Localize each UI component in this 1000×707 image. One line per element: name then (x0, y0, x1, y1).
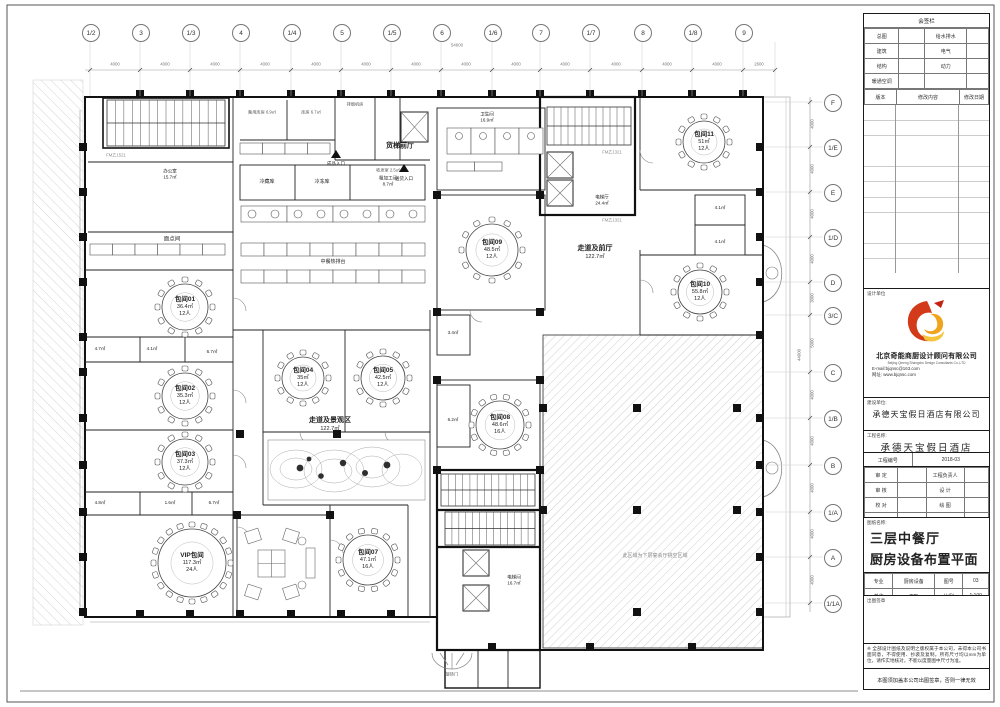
zone-cold-storage-1: 冷藏库 (259, 179, 274, 185)
area-tag: 3.4㎡ (448, 330, 459, 336)
grid-bubble: E (824, 184, 842, 202)
room-label: 包间1151㎡12人 (694, 131, 714, 153)
sheet-name-line2: 厨房设备布置平面图 (870, 549, 989, 573)
prep-bench-row-2 (241, 270, 425, 283)
zone-elevator-room: 电梯间16.7㎡ (507, 574, 521, 585)
dim-label: 4000 (311, 62, 321, 67)
grid-bubble: 1/7 (582, 24, 600, 42)
stair-top-left (107, 100, 225, 146)
validity-note: 本图须加盖本公司出图签章，否则一律无效 (864, 669, 989, 691)
prep-bench-row-1 (241, 243, 425, 256)
dim-label: 4000 (810, 483, 815, 493)
grid-bubble: 5 (333, 24, 351, 42)
dim-label: 4000 (411, 62, 421, 67)
room-label: 包间0435㎡12人 (293, 367, 313, 389)
zone-foyer-corridor: 走道及前厅122.7㎡ (578, 245, 613, 261)
zone-pastry: 面点间 (164, 237, 181, 244)
grid-bubble: 3 (132, 24, 150, 42)
grid-bubble: 1/4 (283, 24, 301, 42)
room-label: 包间0948.5㎡12人 (482, 239, 502, 261)
sheet-name-label: 图纸名称: (867, 520, 887, 526)
dim-label: 4000 (810, 209, 815, 219)
void-hatch-area (543, 335, 763, 648)
revision-empty-rows (864, 105, 989, 273)
dim-total-right: 44000 (797, 349, 802, 361)
cook-line-hoods (241, 206, 425, 222)
dim-label: 4000 (461, 62, 471, 67)
client-label: 建设单位: (867, 400, 887, 406)
company-name-cn: 北京奇能商厨设计顾问有限公司 (864, 351, 989, 361)
zone-wc: 卫生间16.9㎡ (480, 111, 494, 122)
pastry-bench (90, 244, 225, 255)
void-note: 此区域为下层宴会厅挑空区域 (622, 553, 687, 559)
stamp-label: 出图签章 (867, 598, 885, 604)
project-label: 工程名称: (867, 433, 887, 439)
dim-total-top: 54600 (451, 43, 463, 48)
grid-bubble: 1/D (824, 229, 842, 247)
terrace-strip (763, 97, 790, 617)
area-tag: 4.1㎡ (147, 346, 158, 352)
exterior-hatch (33, 80, 83, 625)
project-section: 工程名称: 承德天宝假日酒店 (864, 431, 989, 453)
dim-label: 4000 (560, 62, 570, 67)
company-logo (864, 297, 989, 349)
fire-door-tag: FM乙1521 (106, 152, 126, 157)
dim-label: 4000 (810, 436, 815, 446)
grid-bubble: 1/1A (824, 595, 842, 613)
zone-store-1: 备用库房 6.9㎡ (248, 109, 276, 114)
project-name: 承德天宝假日酒店 (864, 440, 989, 453)
copyright-note: ※ 全部设计图纸及说明之版权属于本公司，未得本公司书面同意，不得使用、抄袭及复制… (864, 644, 989, 669)
wash-bench (240, 143, 330, 154)
room-label: 包间0136.4㎡12人 (175, 296, 195, 318)
room-label: 包间0542.5㎡12人 (373, 367, 393, 389)
room-label: 包间0235.3㎡12人 (175, 385, 195, 407)
grid-bubble: 1/A (824, 504, 842, 522)
area-tag: 4.8㎡ (95, 500, 106, 506)
stair-top-center (547, 107, 631, 145)
elevator-2 (547, 180, 573, 206)
stair-lower-1 (441, 474, 535, 506)
wc-stalls (447, 128, 543, 154)
wc-sinks (447, 162, 502, 171)
client-name: 承德天宝假日酒店有限公司 (864, 409, 989, 420)
dim-label: 4000 (810, 575, 815, 585)
approval-table: 审 定工程负责人 审 核设 计 校 对绘 图 专业负责人日期2018.06.12 (864, 467, 989, 518)
meta-table: 专业厨房设备图号03 单位mm比例1:100 (864, 573, 989, 596)
dim-label: 4000 (712, 62, 722, 67)
zone-cold-storage-2: 冷冻库 (314, 179, 329, 185)
revolving-door-label: 旋转门 (446, 671, 459, 676)
area-tag: 6.7㎡ (207, 349, 218, 355)
grid-bubble: 1/5 (383, 24, 401, 42)
elevator-3 (463, 550, 489, 576)
company-email: E-mail:bjqnsc@163.com (872, 366, 989, 371)
dim-label: 4000 (361, 62, 371, 67)
dim-label: 4000 (511, 62, 521, 67)
drawing-sheet: 包间0136.4㎡12人 包间0235.3㎡12人 包间0337.3㎡12人 包… (0, 0, 1000, 707)
zone-hotline: 中餐热排台 (320, 259, 345, 265)
dim-label: 4000 (662, 62, 672, 67)
room-label: 包间0747.1㎡16人 (358, 549, 378, 571)
grid-bubble: 6 (433, 24, 451, 42)
revolving-door (432, 653, 472, 669)
grid-bubble: 4 (232, 24, 250, 42)
room-label-vip: VIP包间117.3㎡24人 (180, 552, 203, 574)
grid-bubble: 1/B (824, 410, 842, 428)
sign-off-table: 会签栏 总图给水排水 建筑电气 结构动力 暖通空调 版本修改内容修改日期 (864, 14, 989, 289)
dim-label: 5000 (810, 338, 815, 348)
project-no-row: 工程编号 2018-03 (864, 453, 989, 467)
elevator-4 (463, 585, 489, 611)
revision-header: 版本修改内容修改日期 (864, 89, 989, 105)
dim-label: 4000 (810, 164, 815, 174)
entry-label-finished: 成品入口 (327, 161, 345, 167)
room-label: 包间1055.8㎡12人 (690, 281, 710, 303)
stair-lower-2 (445, 512, 535, 545)
grid-bubble: 1/E (824, 139, 842, 157)
grid-bubble: F (824, 94, 842, 112)
fire-door-tag: FM乙1321 (602, 217, 622, 222)
area-tag: 6.7㎡ (209, 500, 220, 506)
dim-label: 4000 (260, 62, 270, 67)
grid-bubble: D (824, 274, 842, 292)
design-firm-section: 设计单位 北京奇能商厨设计顾问有限公司 Beijing Qineng Shang… (864, 289, 989, 398)
elevator-1 (547, 152, 573, 178)
dim-label: 4000 (810, 119, 815, 129)
dim-label: 4000 (110, 62, 120, 67)
zone-store-2: 库房 6.7㎡ (301, 109, 321, 114)
room-label: 包间0337.3㎡12人 (175, 451, 195, 473)
sheet-name-line1: 三层中餐厅 (870, 528, 989, 547)
dim-label: 4000 (210, 62, 220, 67)
dim-label: 3000 (810, 293, 815, 303)
grid-bubble: C (824, 364, 842, 382)
zone-garden-corridor: 走道及景观区122.7㎡ (309, 417, 351, 433)
grid-bubble: 7 (532, 24, 550, 42)
floor-plan-linework (0, 0, 1000, 707)
area-tag: 4.1㎡ (715, 239, 726, 245)
dim-label: 4000 (810, 254, 815, 264)
zone-elevator-hall: 电梯厅24.4㎡ (595, 194, 609, 205)
lounge-furniture (244, 528, 315, 600)
stamp-section: 出图签章 (864, 596, 989, 644)
dim-label: 4000 (810, 529, 815, 539)
garden-feature (268, 440, 425, 500)
grid-bubble: 1/3 (182, 24, 200, 42)
grid-bubble: B (824, 457, 842, 475)
dim-label: 4000 (810, 390, 815, 400)
client-section: 建设单位: 承德天宝假日酒店有限公司 (864, 398, 989, 431)
company-website: 网址: www.bjqnsc.com (872, 372, 989, 378)
zone-mail-room: 收发室 2.5㎡ (376, 167, 400, 172)
dim-label: 2600 (754, 62, 764, 67)
sign-off-grid: 总图给水排水 建筑电气 结构动力 暖通空调 (864, 28, 989, 89)
design-firm-label: 设计单位 (867, 291, 885, 297)
grid-bubble: 1/2 (82, 24, 100, 42)
zone-smoke-room: 排烟机房 (347, 101, 364, 106)
freight-elevator (401, 112, 428, 142)
title-block: 会签栏 总图给水排水 建筑电气 结构动力 暖通空调 版本修改内容修改日期 设计单… (863, 13, 990, 690)
company-name-en: Beijing Qineng Shangchu Design Consultan… (867, 361, 986, 365)
dim-label: 4000 (611, 62, 621, 67)
area-tag: 6.2㎡ (448, 417, 459, 423)
room-label: 包间0848.6㎡16人 (490, 414, 510, 436)
area-tag: 1.6㎡ (165, 500, 176, 506)
zone-office: 办公室15.7㎡ (163, 168, 177, 179)
fire-door-tag: FM乙1321 (602, 149, 622, 154)
sheet-name-section: 图纸名称: 三层中餐厅 厨房设备布置平面图 (864, 518, 989, 573)
entry-label-delivery: 送货入口 (395, 176, 413, 182)
grid-bubble: 9 (735, 24, 753, 42)
sign-off-title: 会签栏 (864, 14, 989, 28)
dim-label: 4000 (160, 62, 170, 67)
zone-freight-lobby: 货梯前厅 (386, 143, 414, 152)
area-tag: 4.7㎡ (95, 346, 106, 352)
grid-bubble: 1/8 (684, 24, 702, 42)
grid-bubble: 3/C (824, 307, 842, 325)
grid-bubble: A (824, 549, 842, 567)
grid-bubble: 1/6 (484, 24, 502, 42)
grid-bubble: 8 (634, 24, 652, 42)
area-tag: 4.1㎡ (715, 205, 726, 211)
